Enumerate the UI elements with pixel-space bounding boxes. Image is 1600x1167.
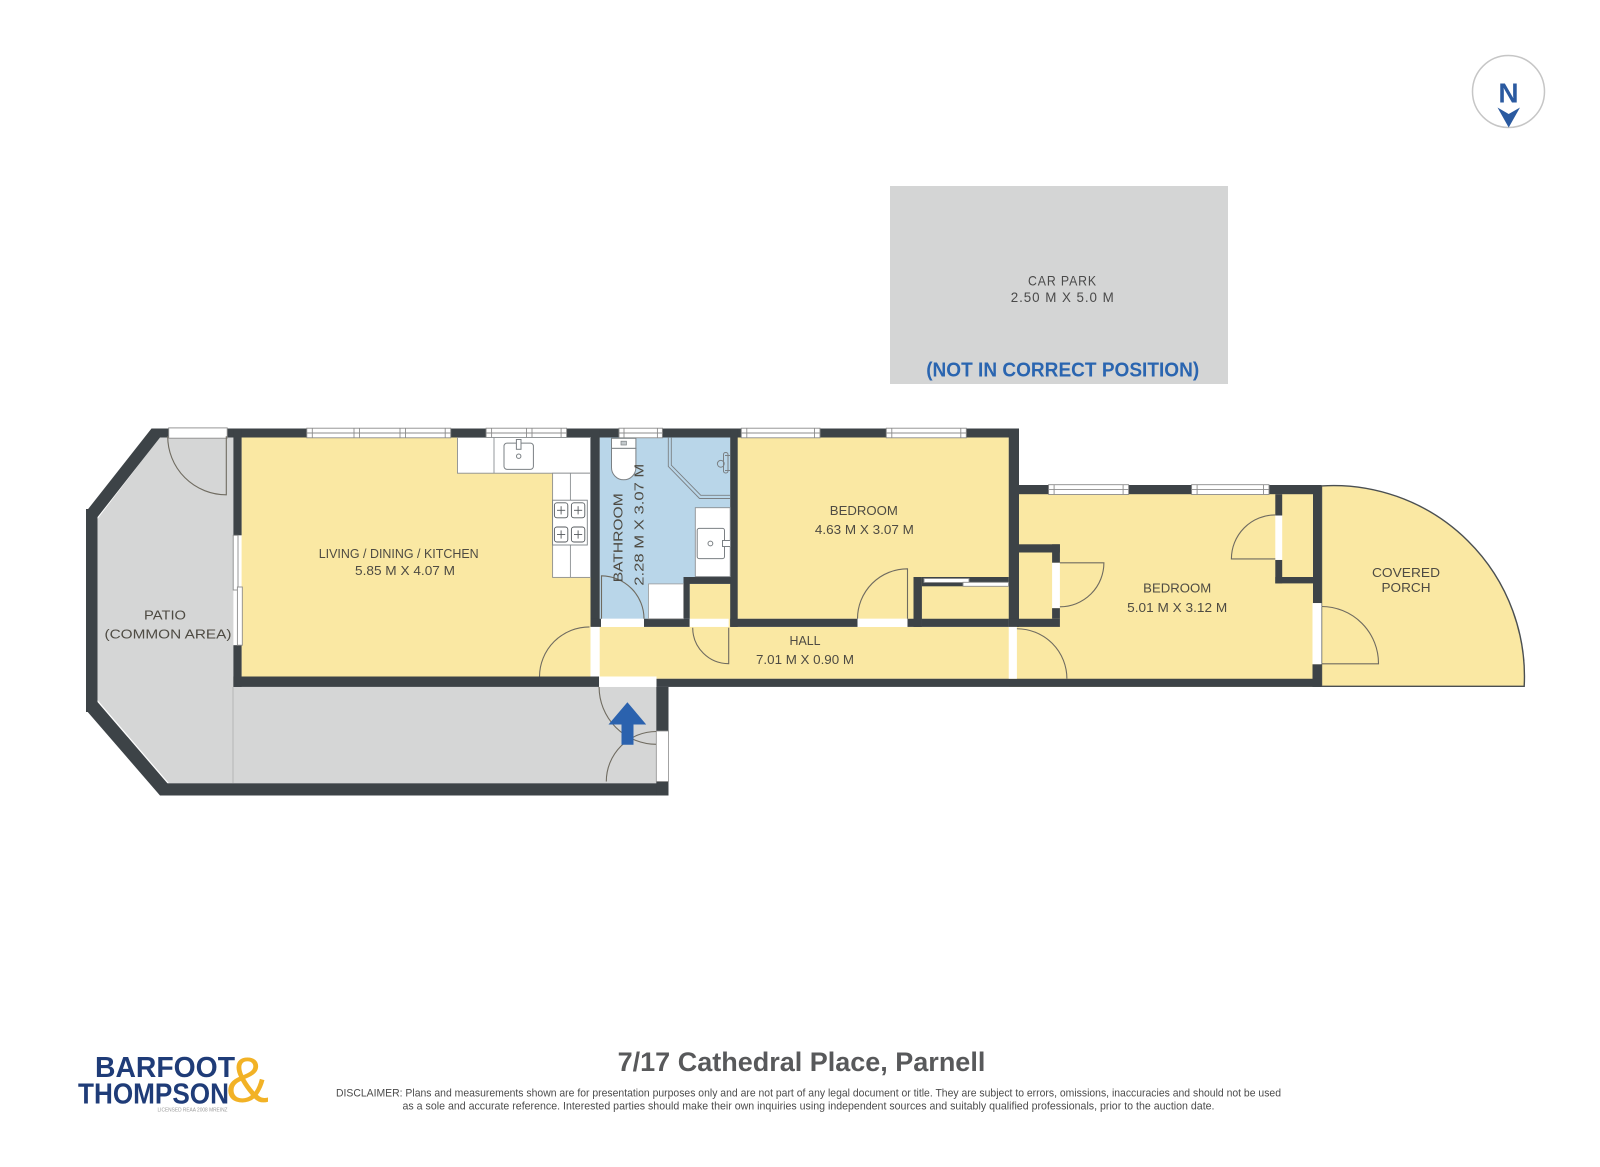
- svg-text:N: N: [1498, 78, 1518, 109]
- svg-text:2.28 M X 3.07 M: 2.28 M X 3.07 M: [632, 464, 647, 586]
- svg-text:COVERED: COVERED: [1372, 565, 1440, 580]
- svg-text:&: &: [226, 1044, 269, 1116]
- svg-text:BATHROOM: BATHROOM: [611, 493, 626, 582]
- svg-text:BEDROOM: BEDROOM: [830, 503, 898, 518]
- svg-text:as a sole and accurate referen: as a sole and accurate reference. Intere…: [403, 1101, 1215, 1113]
- svg-text:LICENSED REAA 2008 MREINZ: LICENSED REAA 2008 MREINZ: [158, 1108, 229, 1114]
- svg-text:5.85 M X 4.07 M: 5.85 M X 4.07 M: [355, 563, 455, 578]
- svg-text:HALL: HALL: [790, 633, 821, 648]
- svg-text:BEDROOM: BEDROOM: [1143, 581, 1211, 596]
- svg-text:DISCLAIMER: Plans and measurem: DISCLAIMER: Plans and measurements shown…: [336, 1088, 1281, 1100]
- svg-text:7.01 M X 0.90 M: 7.01 M X 0.90 M: [756, 652, 854, 667]
- svg-text:(NOT IN CORRECT POSITION): (NOT IN CORRECT POSITION): [926, 360, 1199, 382]
- svg-text:LIVING / DINING / KITCHEN: LIVING / DINING / KITCHEN: [319, 546, 479, 561]
- svg-text:PORCH: PORCH: [1382, 580, 1431, 595]
- svg-text:4.63 M X 3.07 M: 4.63 M X 3.07 M: [815, 522, 914, 537]
- svg-text:PATIO: PATIO: [144, 608, 186, 623]
- svg-text:THOMPSON: THOMPSON: [78, 1079, 229, 1111]
- svg-text:2.50 M X 5.0 M: 2.50 M X 5.0 M: [1011, 289, 1115, 305]
- svg-text:CAR PARK: CAR PARK: [1028, 273, 1097, 289]
- svg-text:5.01 M X 3.12 M: 5.01 M X 3.12 M: [1127, 600, 1227, 615]
- svg-text:(COMMON AREA): (COMMON AREA): [105, 627, 232, 642]
- svg-text:7/17 Cathedral Place, Parnell: 7/17 Cathedral Place, Parnell: [618, 1047, 986, 1077]
